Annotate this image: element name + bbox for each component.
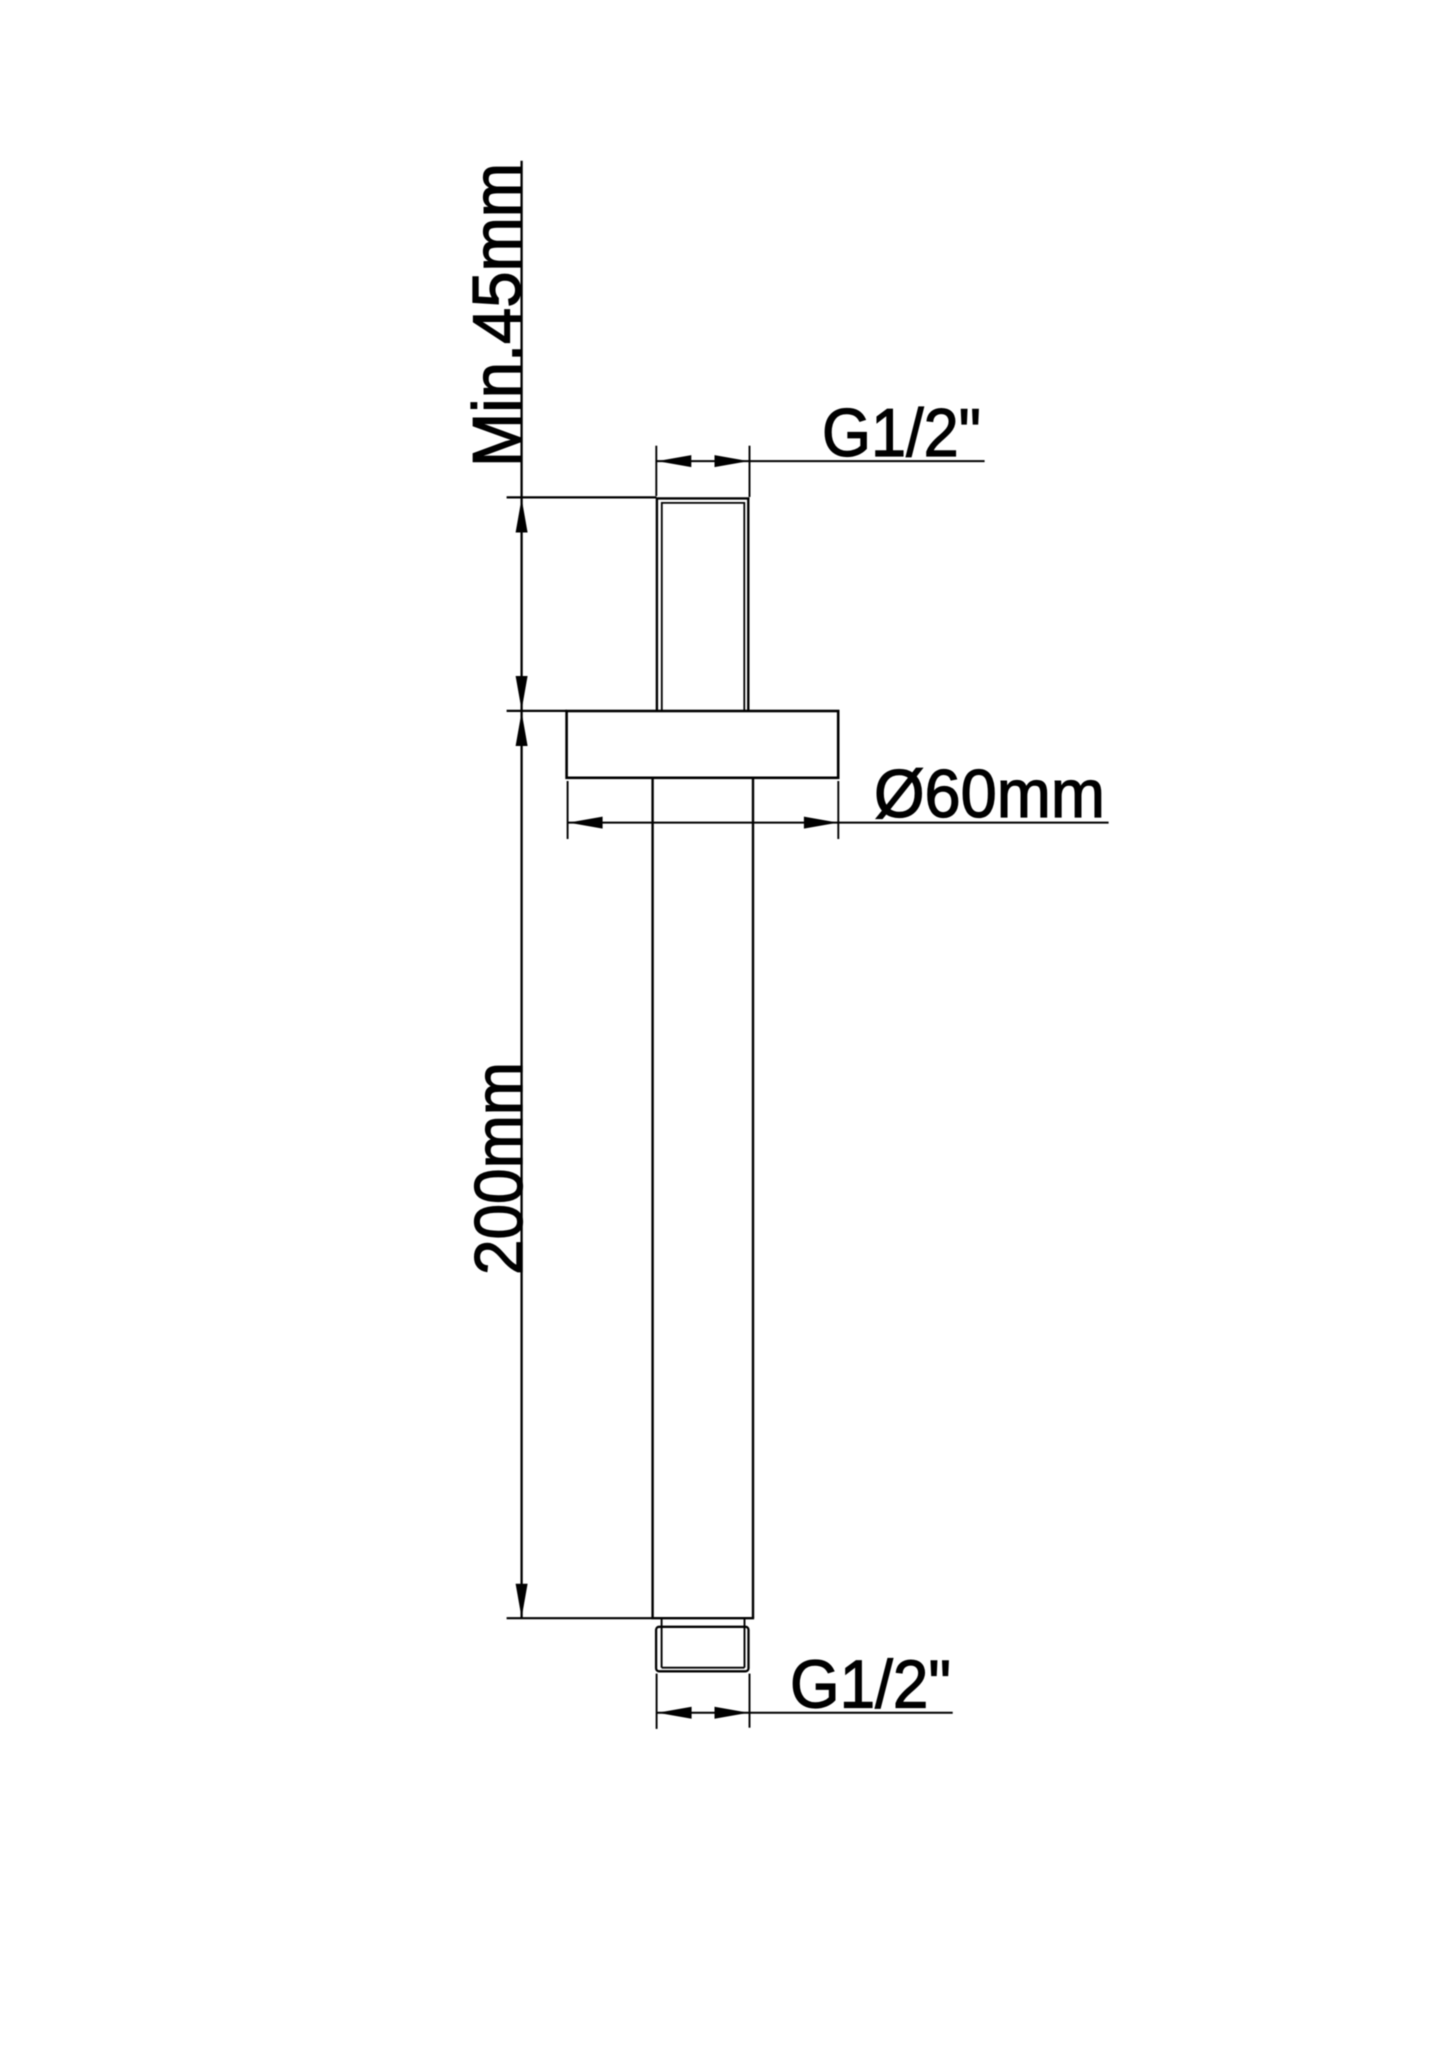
svg-text:G1/2": G1/2" — [790, 1647, 951, 1723]
svg-text:Min.45mm: Min.45mm — [459, 163, 535, 467]
svg-text:200mm: 200mm — [461, 1062, 537, 1275]
svg-text:G1/2": G1/2" — [822, 395, 981, 471]
svg-text:Ø60mm: Ø60mm — [874, 756, 1105, 832]
